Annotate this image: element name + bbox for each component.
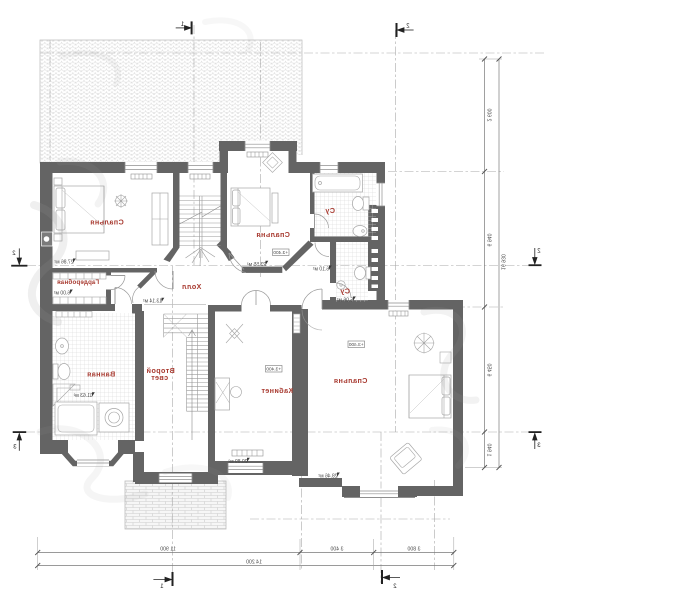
- svg-text:6 450: 6 450: [485, 363, 491, 376]
- svg-text:1 940: 1 940: [485, 443, 491, 456]
- svg-text:3 800: 3 800: [407, 547, 420, 553]
- svg-text:13.14 м²: 13.14 м²: [143, 299, 162, 305]
- svg-text:+3.400: +3.400: [266, 367, 281, 373]
- svg-text:2 600: 2 600: [485, 108, 491, 121]
- svg-text:2: 2: [12, 251, 16, 257]
- svg-text:Су: Су: [340, 287, 350, 296]
- svg-text:5.06 м²: 5.06 м²: [337, 298, 354, 304]
- svg-text:1: 1: [180, 22, 184, 28]
- svg-text:1: 1: [160, 584, 164, 590]
- svg-text:2: 2: [393, 584, 397, 590]
- svg-text:Холл: Холл: [182, 282, 202, 291]
- svg-text:20.89 м²: 20.89 м²: [228, 459, 247, 465]
- svg-text:16 930: 16 930: [500, 254, 506, 270]
- svg-text:3 400: 3 400: [330, 547, 343, 553]
- svg-text:+3.400: +3.400: [348, 342, 363, 348]
- svg-text:14 200: 14 200: [246, 560, 262, 566]
- svg-text:6.00 м²: 6.00 м²: [54, 291, 71, 297]
- svg-text:Кабинет: Кабинет: [261, 386, 293, 395]
- svg-text:2: 2: [537, 249, 541, 255]
- svg-text:28.46 м²: 28.46 м²: [318, 474, 337, 480]
- svg-text:6 940: 6 940: [485, 233, 491, 246]
- svg-text:Спальня: Спальня: [334, 376, 368, 385]
- svg-text:6.10 м²: 6.10 м²: [313, 267, 330, 273]
- svg-text:Гардеробная: Гардеробная: [57, 279, 99, 286]
- svg-text:свет: свет: [151, 373, 168, 382]
- svg-text:23.55 м²: 23.55 м²: [247, 262, 266, 268]
- svg-text:Ванная: Ванная: [87, 370, 115, 379]
- svg-text:Спальня: Спальня: [90, 218, 124, 227]
- svg-text:2: 2: [406, 24, 410, 30]
- svg-text:11.63 м²: 11.63 м²: [73, 393, 92, 399]
- svg-text:3: 3: [13, 445, 17, 451]
- svg-text:3: 3: [537, 443, 541, 449]
- svg-text:Су: Су: [325, 206, 335, 215]
- svg-text:11 900: 11 900: [160, 547, 176, 553]
- svg-text:Спальня: Спальня: [256, 230, 290, 239]
- svg-text:+3.400: +3.400: [273, 250, 288, 256]
